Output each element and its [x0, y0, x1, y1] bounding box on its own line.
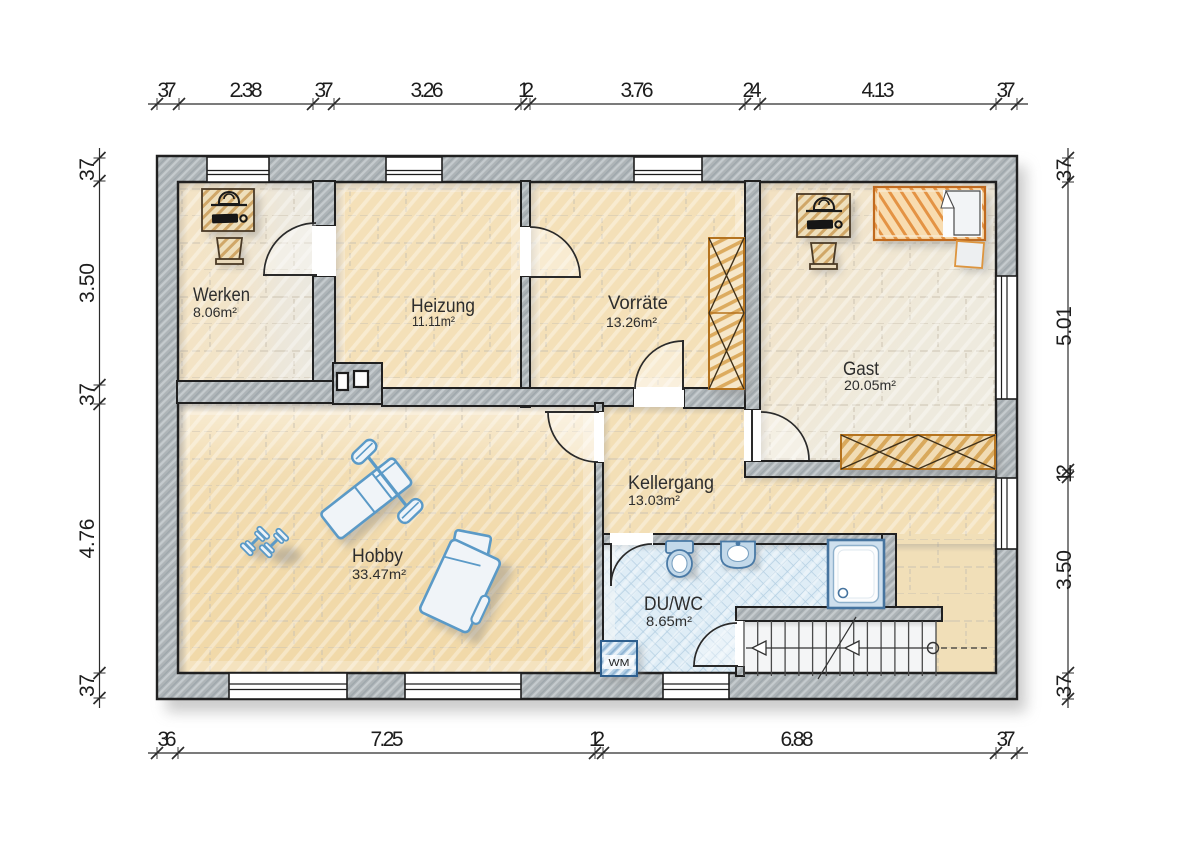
svg-text:37: 37: [76, 158, 99, 181]
svg-text:6.88: 6.88: [781, 728, 814, 751]
svg-text:33.47m²: 33.47m²: [352, 566, 406, 582]
svg-text:12: 12: [518, 79, 534, 102]
svg-text:4.76: 4.76: [76, 519, 99, 559]
svg-text:37: 37: [1053, 159, 1076, 182]
svg-text:12: 12: [589, 728, 605, 751]
svg-text:3.76: 3.76: [621, 79, 654, 102]
svg-text:11.11m²: 11.11m²: [412, 313, 455, 329]
svg-text:13.26m²: 13.26m²: [606, 314, 657, 330]
svg-text:37: 37: [997, 79, 1016, 102]
svg-text:5.01: 5.01: [1053, 306, 1076, 346]
svg-text:7.25: 7.25: [371, 728, 404, 751]
svg-text:3.50: 3.50: [76, 263, 99, 303]
svg-text:37: 37: [76, 383, 99, 406]
svg-text:8.65m²: 8.65m²: [646, 613, 692, 629]
svg-text:3.50: 3.50: [1053, 550, 1076, 590]
svg-text:36: 36: [158, 728, 177, 751]
svg-text:13.03m²: 13.03m²: [628, 492, 680, 508]
svg-text:37: 37: [158, 79, 177, 102]
svg-text:37: 37: [76, 674, 99, 697]
svg-text:Vorräte: Vorräte: [608, 292, 668, 314]
svg-text:37: 37: [997, 728, 1016, 751]
svg-text:8.06m²: 8.06m²: [193, 304, 237, 320]
svg-text:WM: WM: [609, 657, 630, 669]
svg-text:Kellergang: Kellergang: [628, 472, 714, 494]
svg-text:37: 37: [315, 79, 334, 102]
svg-text:24: 24: [743, 79, 762, 102]
svg-text:2.38: 2.38: [230, 79, 263, 102]
svg-text:3.26: 3.26: [411, 79, 444, 102]
svg-text:37: 37: [1053, 675, 1076, 698]
svg-text:Werken: Werken: [193, 284, 250, 306]
svg-text:20.05m²: 20.05m²: [844, 377, 896, 393]
svg-text:12: 12: [1053, 464, 1076, 483]
svg-text:Hobby: Hobby: [352, 545, 403, 567]
svg-text:DU/WC: DU/WC: [644, 593, 703, 615]
svg-text:4.13: 4.13: [862, 79, 895, 102]
